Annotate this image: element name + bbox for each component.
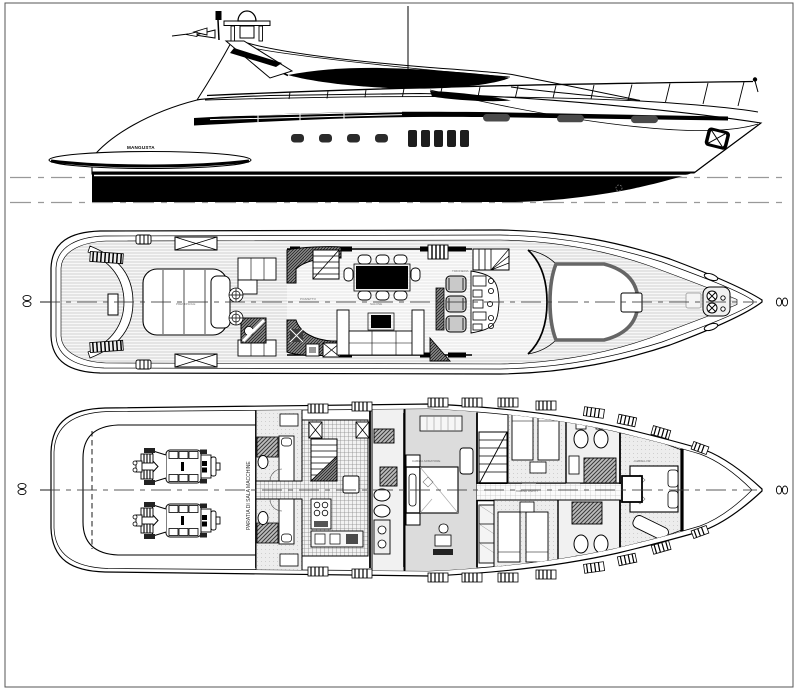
svg-text:POZZETTO: POZZETTO <box>300 297 317 301</box>
svg-text:PARATIA DI SALA MACCHINE: PARATIA DI SALA MACCHINE <box>246 461 252 530</box>
svg-text:MANGUSTA: MANGUSTA <box>127 145 155 150</box>
svg-text:SALONE: SALONE <box>370 302 382 306</box>
svg-text:TIMONERIA: TIMONERIA <box>452 269 469 273</box>
svg-text:CABINA ARMATORE: CABINA ARMATORE <box>412 459 440 463</box>
svg-text:PRENDISOLE: PRENDISOLE <box>176 302 195 306</box>
svg-text:CABINA VIP: CABINA VIP <box>634 459 651 463</box>
